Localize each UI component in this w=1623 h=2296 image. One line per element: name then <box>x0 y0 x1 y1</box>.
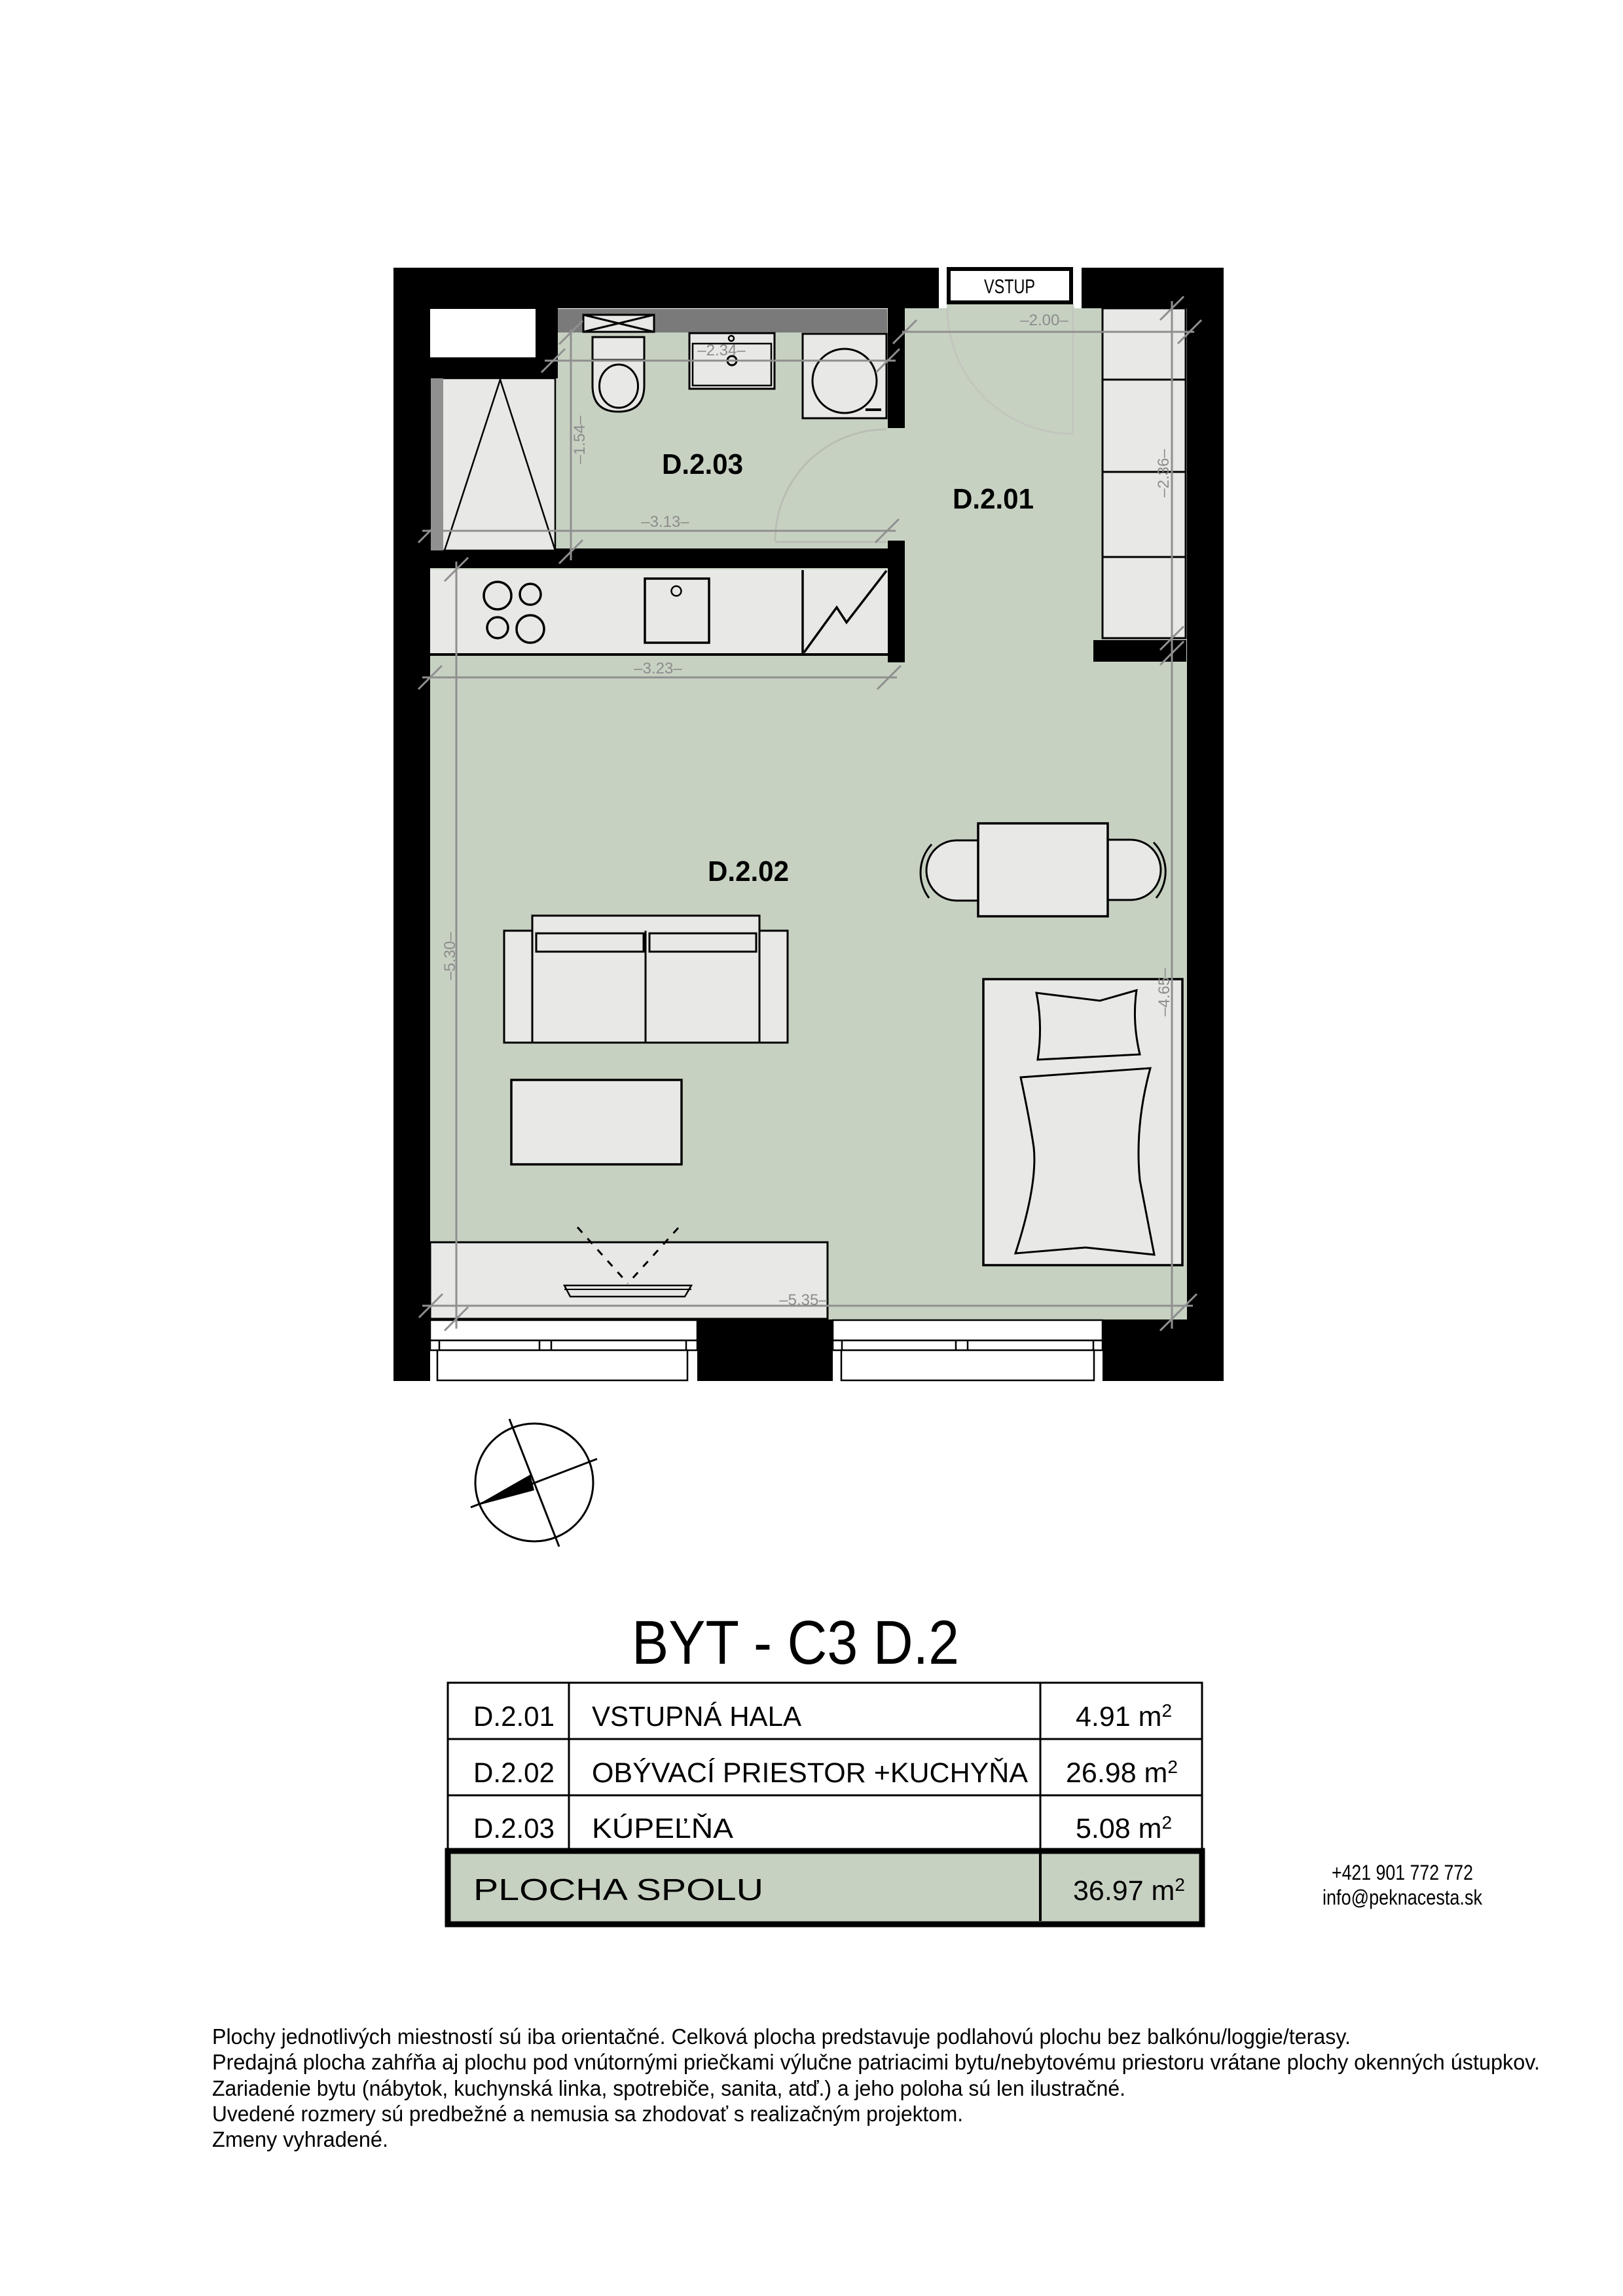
svg-text:–5.30–: –5.30– <box>441 932 459 980</box>
svg-text:5.08 m2: 5.08 m2 <box>1076 1812 1172 1844</box>
svg-text:D.2.02: D.2.02 <box>473 1757 555 1789</box>
svg-text:D.2.03: D.2.03 <box>662 448 743 480</box>
svg-text:D.2.01: D.2.01 <box>473 1701 555 1732</box>
svg-text:VSTUPNÁ HALA: VSTUPNÁ HALA <box>592 1701 801 1732</box>
svg-text:Uvedené rozmery sú predbežné a: Uvedené rozmery sú predbežné a nemusia s… <box>212 2102 963 2126</box>
svg-text:OBÝVACÍ PRIESTOR +KUCHYŇA: OBÝVACÍ PRIESTOR +KUCHYŇA <box>592 1757 1028 1789</box>
svg-text:KÚPEĽŇA: KÚPEĽŇA <box>592 1813 733 1844</box>
svg-text:–3.13–: –3.13– <box>641 513 689 531</box>
svg-text:–5.35–: –5.35– <box>779 1291 828 1309</box>
svg-text:Zariadenie bytu (nábytok, kuch: Zariadenie bytu (nábytok, kuchynská link… <box>212 2076 1125 2100</box>
svg-text:Plochy jednotlivých miestností: Plochy jednotlivých miestností sú iba or… <box>212 2024 1351 2049</box>
svg-text:BYT - C3 D.2: BYT - C3 D.2 <box>632 1608 959 1677</box>
svg-text:4.91 m2: 4.91 m2 <box>1076 1700 1172 1732</box>
svg-text:D.2.02: D.2.02 <box>708 855 789 888</box>
svg-text:Predajná plocha zahŕňa aj ploc: Predajná plocha zahŕňa aj plochu pod vnú… <box>212 2050 1540 2074</box>
svg-text:D.2.03: D.2.03 <box>473 1813 555 1844</box>
svg-text:36.97 m2: 36.97 m2 <box>1073 1874 1185 1907</box>
svg-text:26.98 m2: 26.98 m2 <box>1066 1757 1178 1789</box>
svg-text:D.2.01: D.2.01 <box>953 483 1034 515</box>
svg-text:–4.65–: –4.65– <box>1156 968 1173 1016</box>
svg-text:+421 901 772 772: +421 901 772 772 <box>1332 1861 1473 1884</box>
svg-text:–1.54–: –1.54– <box>571 416 589 464</box>
svg-text:PLOCHA SPOLU: PLOCHA SPOLU <box>473 1873 763 1907</box>
svg-text:–2.36–: –2.36– <box>1155 449 1173 497</box>
svg-text:info@peknacesta.sk: info@peknacesta.sk <box>1322 1886 1483 1909</box>
svg-text:VSTUP: VSTUP <box>984 275 1035 298</box>
svg-text:–2.34–: –2.34– <box>697 342 746 359</box>
svg-text:Zmeny vyhradené.: Zmeny vyhradené. <box>212 2127 388 2151</box>
svg-text:–2.00–: –2.00– <box>1020 312 1068 329</box>
svg-text:–3.23–: –3.23– <box>634 660 682 677</box>
